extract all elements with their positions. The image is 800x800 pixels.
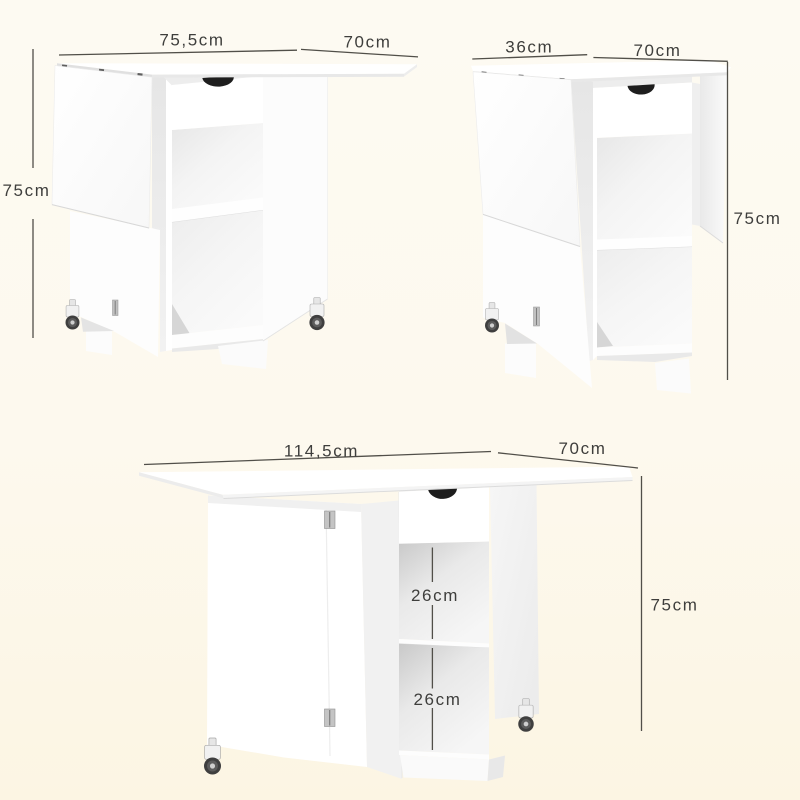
svg-text:26cm: 26cm [414, 690, 462, 709]
svg-text:26cm: 26cm [411, 586, 459, 605]
svg-text:75cm: 75cm [734, 209, 782, 228]
svg-text:70cm: 70cm [344, 32, 392, 51]
svg-text:70cm: 70cm [634, 41, 682, 60]
svg-text:70cm: 70cm [559, 439, 607, 458]
svg-text:75,5cm: 75,5cm [159, 31, 224, 50]
svg-text:75cm: 75cm [3, 181, 51, 200]
svg-text:36cm: 36cm [505, 38, 553, 57]
svg-text:114,5cm: 114,5cm [284, 441, 359, 460]
svg-text:75cm: 75cm [651, 596, 699, 615]
